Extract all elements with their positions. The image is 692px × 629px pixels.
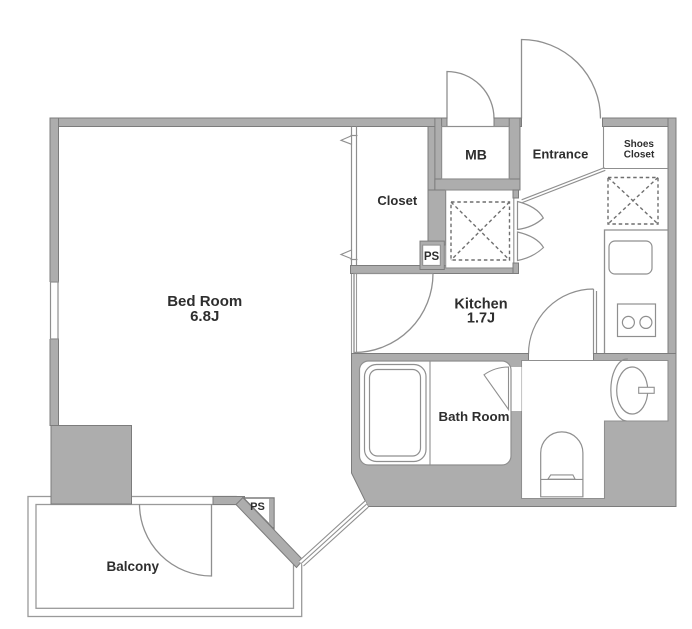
svg-text:6.8J: 6.8J bbox=[190, 308, 219, 325]
svg-text:MB: MB bbox=[465, 147, 487, 163]
svg-text:Closet: Closet bbox=[624, 149, 655, 160]
svg-text:Bath Room: Bath Room bbox=[439, 409, 510, 424]
svg-text:Shoes: Shoes bbox=[624, 139, 654, 150]
svg-text:PS: PS bbox=[250, 501, 265, 513]
svg-text:Balcony: Balcony bbox=[107, 559, 160, 574]
svg-text:Entrance: Entrance bbox=[533, 147, 589, 162]
svg-text:PS: PS bbox=[424, 251, 440, 263]
svg-text:Closet: Closet bbox=[377, 193, 417, 208]
svg-text:1.7J: 1.7J bbox=[467, 311, 495, 327]
